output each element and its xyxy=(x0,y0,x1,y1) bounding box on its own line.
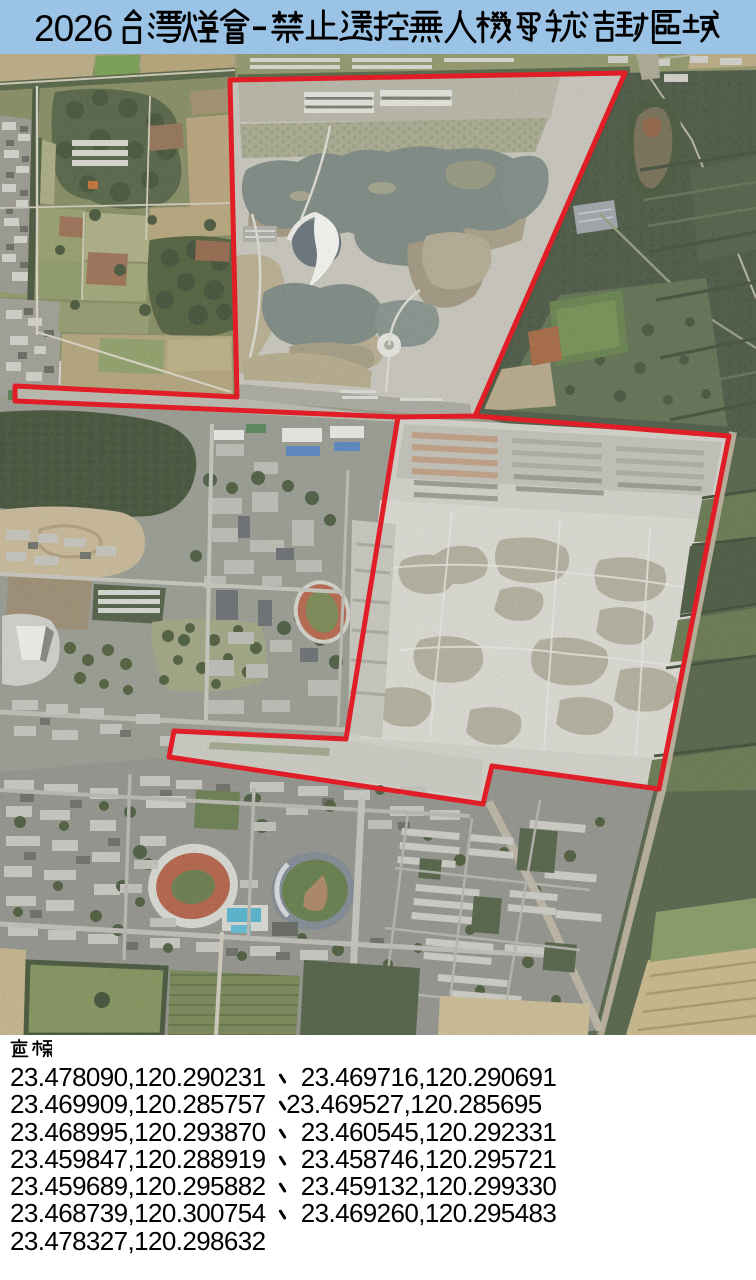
svg-text:2026: 2026 xyxy=(34,8,112,49)
